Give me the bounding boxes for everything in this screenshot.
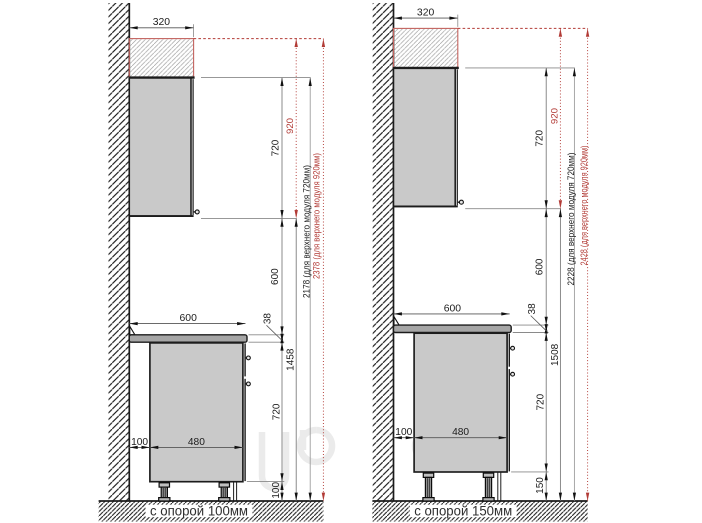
svg-text:480: 480: [452, 427, 469, 438]
svg-text:2428 (для верхнего модуля 920м: 2428 (для верхнего модуля 920мм): [579, 146, 589, 266]
svg-text:480: 480: [188, 437, 205, 448]
svg-text:600: 600: [444, 304, 462, 315]
svg-text:600: 600: [270, 268, 281, 285]
svg-text:2228 (для верхнего модуля 720м: 2228 (для верхнего модуля 720мм): [566, 153, 576, 286]
svg-text:100: 100: [395, 427, 412, 438]
svg-text:с опорой 150мм: с опорой 150мм: [414, 503, 512, 518]
svg-text:2378 (для верхнего модуля 920м: 2378 (для верхнего модуля 920мм): [312, 153, 322, 279]
svg-text:38: 38: [263, 313, 274, 325]
svg-text:720: 720: [271, 403, 282, 420]
svg-text:150: 150: [535, 477, 546, 494]
svg-text:600: 600: [180, 313, 198, 324]
svg-text:2178 (для верхнего модуля 720м: 2178 (для верхнего модуля 720мм): [302, 165, 312, 298]
svg-text:920: 920: [549, 108, 560, 124]
svg-text:920: 920: [285, 118, 296, 134]
svg-text:720: 720: [536, 393, 547, 410]
svg-text:100: 100: [131, 437, 148, 448]
svg-text:1508: 1508: [550, 343, 561, 366]
svg-text:320: 320: [417, 8, 435, 19]
svg-text:38: 38: [527, 303, 538, 315]
svg-text:1458: 1458: [286, 348, 297, 371]
svg-text:с опорой 100мм: с опорой 100мм: [150, 503, 248, 518]
svg-text:720: 720: [271, 139, 282, 156]
svg-text:320: 320: [153, 17, 171, 28]
svg-text:100: 100: [271, 482, 282, 499]
svg-text:720: 720: [535, 130, 546, 147]
svg-text:600: 600: [534, 258, 545, 275]
